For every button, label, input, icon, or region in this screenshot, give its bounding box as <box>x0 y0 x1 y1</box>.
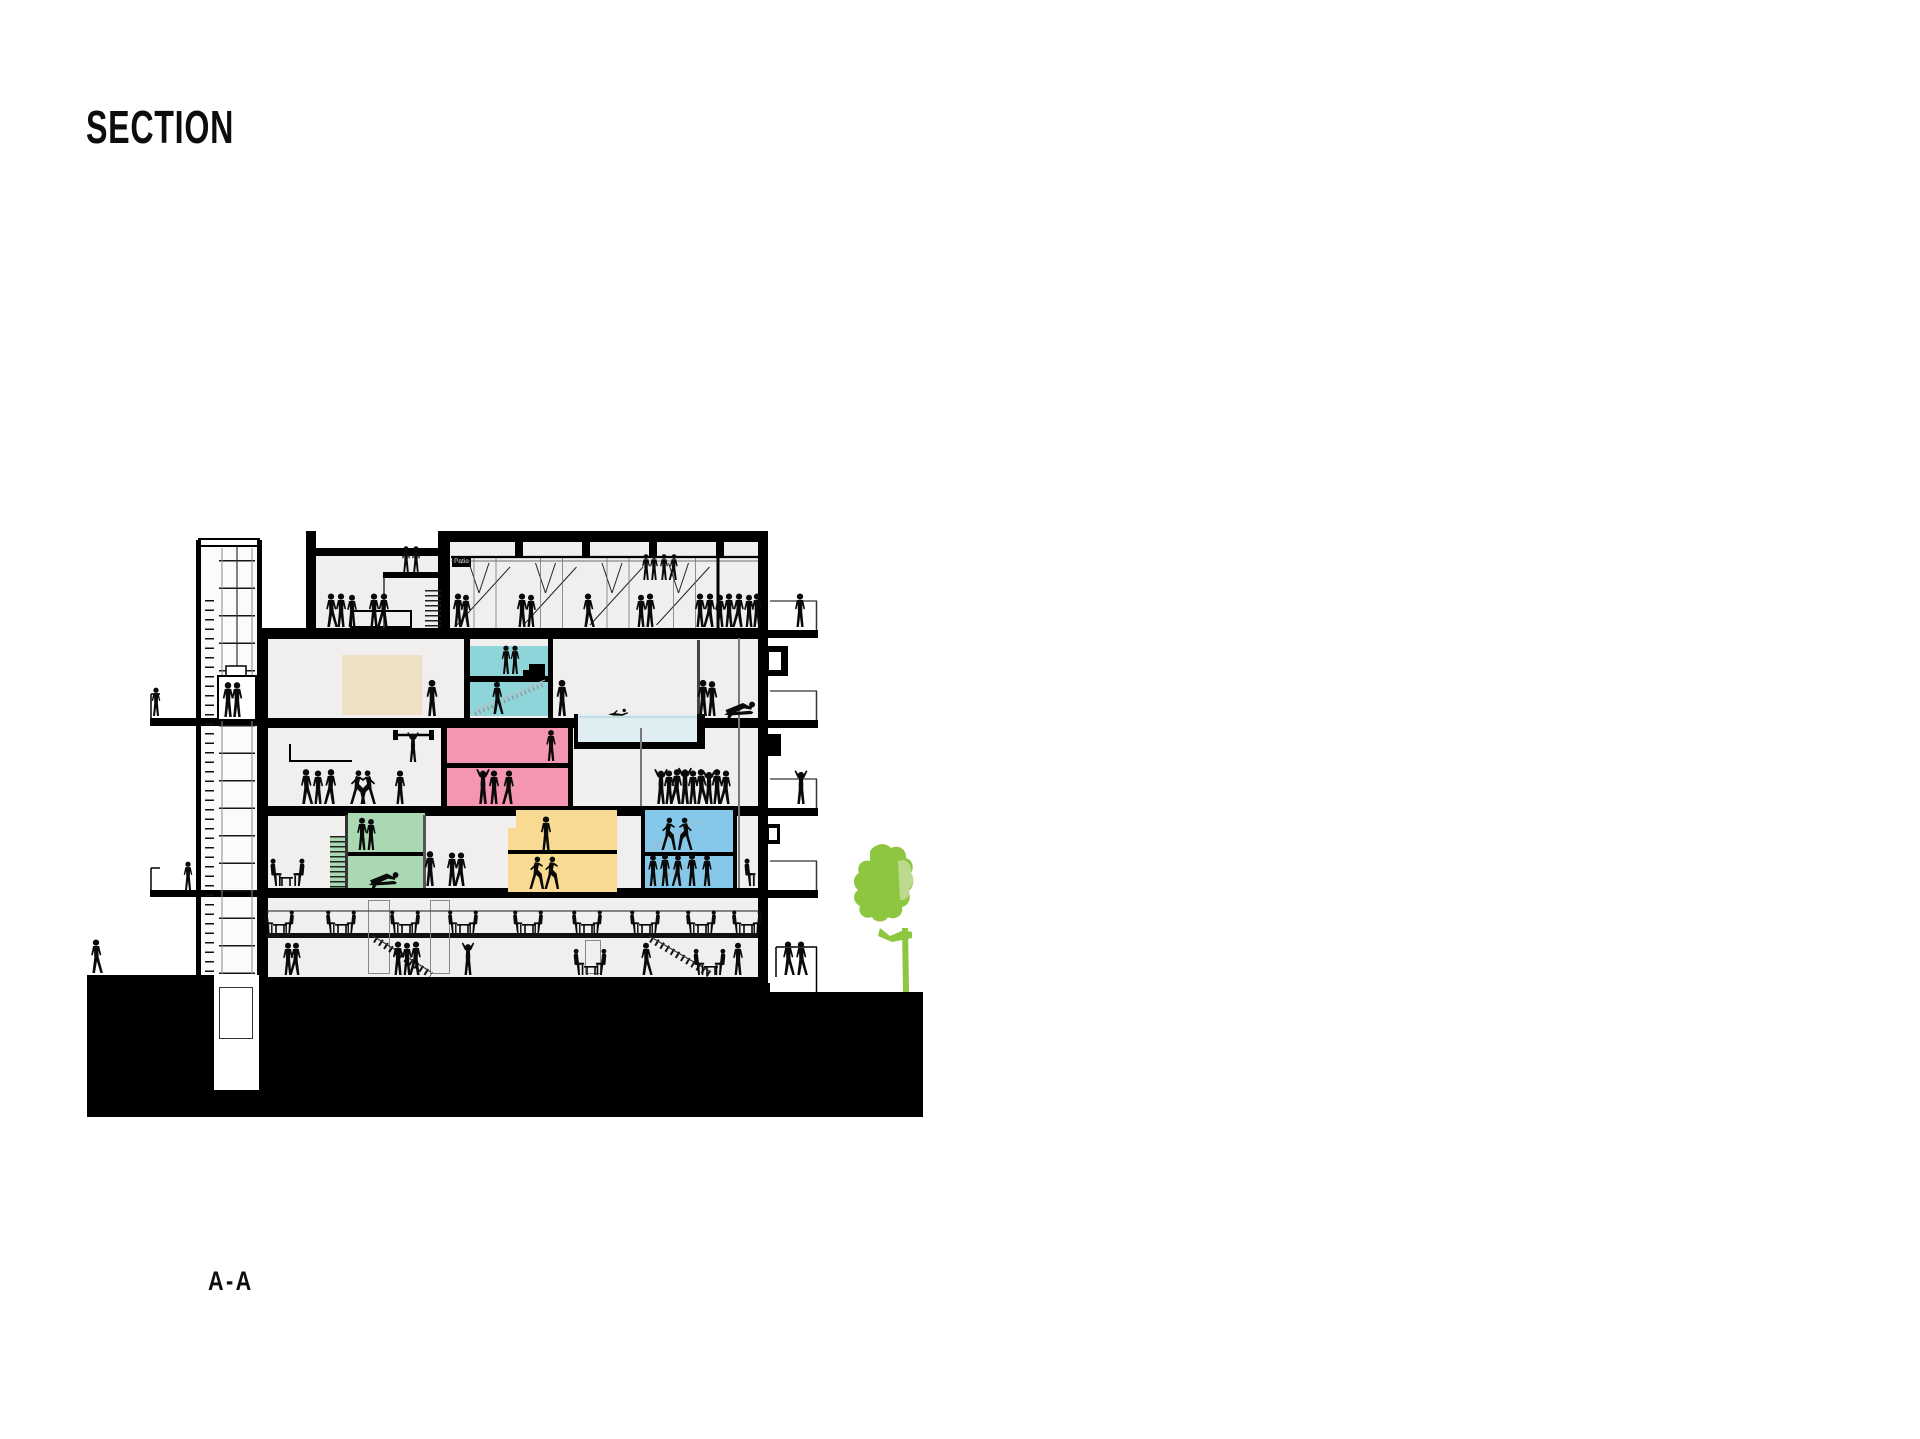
left-balcony-slab-upper <box>150 718 259 726</box>
counter-table <box>350 610 412 628</box>
door-frame <box>430 900 450 974</box>
floor-slab <box>701 718 768 728</box>
balcony-slab <box>768 808 818 816</box>
meeting-box-beige <box>342 655 422 715</box>
mezzanine-slab <box>266 933 758 938</box>
hall-pink-upper <box>447 728 568 763</box>
column <box>697 640 700 714</box>
balcony-slab <box>768 890 818 898</box>
elevator-tower-wall-left <box>196 540 201 977</box>
partition <box>423 815 426 888</box>
ground-mass-right <box>770 992 923 1117</box>
pool-wall-left <box>574 714 578 744</box>
gym-blue-lower <box>645 856 733 888</box>
door-frame <box>585 940 601 974</box>
studio-yellow-lower <box>508 854 617 892</box>
person-figure <box>796 941 808 975</box>
door-frame <box>368 900 390 974</box>
lounge-green-upper <box>348 813 425 852</box>
person-figure <box>152 688 161 716</box>
wall <box>733 810 737 892</box>
right-window <box>769 652 781 670</box>
room-tag: Patio <box>452 557 471 567</box>
roof-slab-low <box>306 548 440 556</box>
person-figure <box>184 862 193 890</box>
tree <box>854 844 913 992</box>
hall-pink-lower <box>447 768 568 806</box>
roof-post <box>515 541 523 558</box>
wall <box>548 638 553 718</box>
left-balcony-slab-lower <box>150 890 259 897</box>
pool-wall-right <box>697 714 705 744</box>
ground-mass-left <box>87 975 211 1117</box>
mezzanine5-platform <box>383 572 445 578</box>
section-label: A-A <box>208 1266 254 1297</box>
ground-floor-slab <box>259 977 768 983</box>
swimming-pool <box>578 714 697 742</box>
ground-mass-center <box>196 983 770 1117</box>
wall-floor5-left <box>306 531 316 638</box>
teal-step <box>529 664 545 670</box>
roof-post <box>649 541 657 558</box>
studio-teal-lower <box>470 682 548 716</box>
elevator-counterweight <box>219 987 253 1039</box>
wall <box>568 728 573 806</box>
person-figure <box>795 770 808 804</box>
roof-post <box>582 541 590 558</box>
floor5-left-notch <box>266 545 306 631</box>
balcony-slab <box>768 720 818 728</box>
partition <box>640 728 642 806</box>
wall-right <box>758 531 768 983</box>
partition <box>738 638 740 888</box>
wall-ladder <box>330 836 346 888</box>
teal-step <box>523 670 545 676</box>
roof-post-main <box>438 531 450 628</box>
roof-post <box>716 541 724 558</box>
right-window <box>769 828 777 840</box>
elevator-shaft <box>201 547 257 975</box>
elevator-tower-cap <box>198 538 260 547</box>
lounge-green-lower <box>348 856 425 888</box>
floor-slab <box>259 628 768 639</box>
right-window-box <box>763 734 781 756</box>
page-title: SECTION <box>86 100 234 154</box>
person-figure <box>91 939 103 973</box>
person-figure <box>783 941 795 975</box>
section-drawing-page: SECTION <box>0 0 1920 1439</box>
balcony-slab <box>768 630 818 638</box>
gym-blue-upper <box>645 810 733 852</box>
studio-yellow-upper <box>516 810 617 852</box>
person-figure <box>795 593 805 627</box>
floor-slab <box>259 718 578 728</box>
